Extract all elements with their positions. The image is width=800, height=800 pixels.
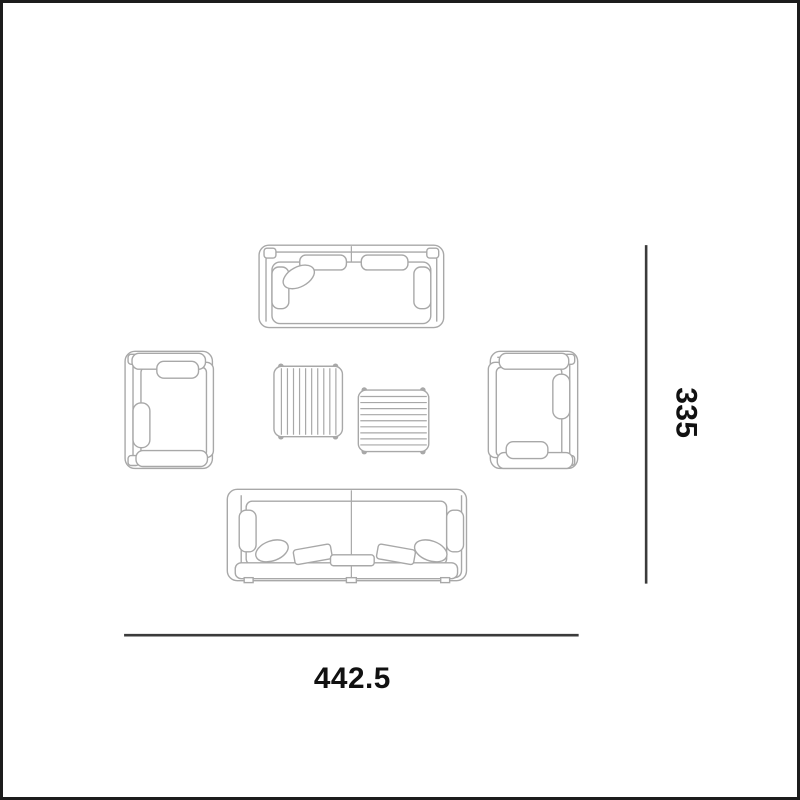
seat-cushion (506, 442, 548, 459)
sofa-three-seat-bottom (227, 489, 466, 582)
width-dimension-label: 442.5 (314, 662, 391, 695)
drawing-page: 442.5 335 (0, 0, 800, 800)
sofa-corner-foot (264, 248, 276, 258)
floor-plan-drawing: 442.5 335 (3, 3, 797, 797)
throw-pillow-flat (331, 555, 375, 566)
armchair-right (488, 351, 577, 468)
back-pillow (133, 403, 150, 448)
coffee-table-slatted-small (358, 387, 428, 454)
armrest-cushion (239, 510, 256, 552)
coffee-table-slatted-large (274, 363, 342, 439)
table-top (274, 366, 342, 436)
armchair-left (125, 351, 213, 468)
armrest-cushion (136, 451, 207, 467)
armrest-cushion (447, 510, 464, 552)
sofa-foot (441, 578, 450, 583)
sofa-two-seat-top (259, 245, 444, 327)
back-pillow (553, 374, 570, 419)
sofa-foot (346, 578, 356, 583)
armrest-cushion (414, 267, 431, 309)
seat-cushion (157, 361, 199, 378)
sofa-corner-foot (427, 248, 439, 258)
armrest-cushion (499, 353, 568, 369)
armchair-seat (141, 367, 207, 456)
back-cushion (361, 255, 408, 270)
sofa-foot (244, 578, 253, 583)
height-dimension-label: 335 (669, 387, 702, 438)
